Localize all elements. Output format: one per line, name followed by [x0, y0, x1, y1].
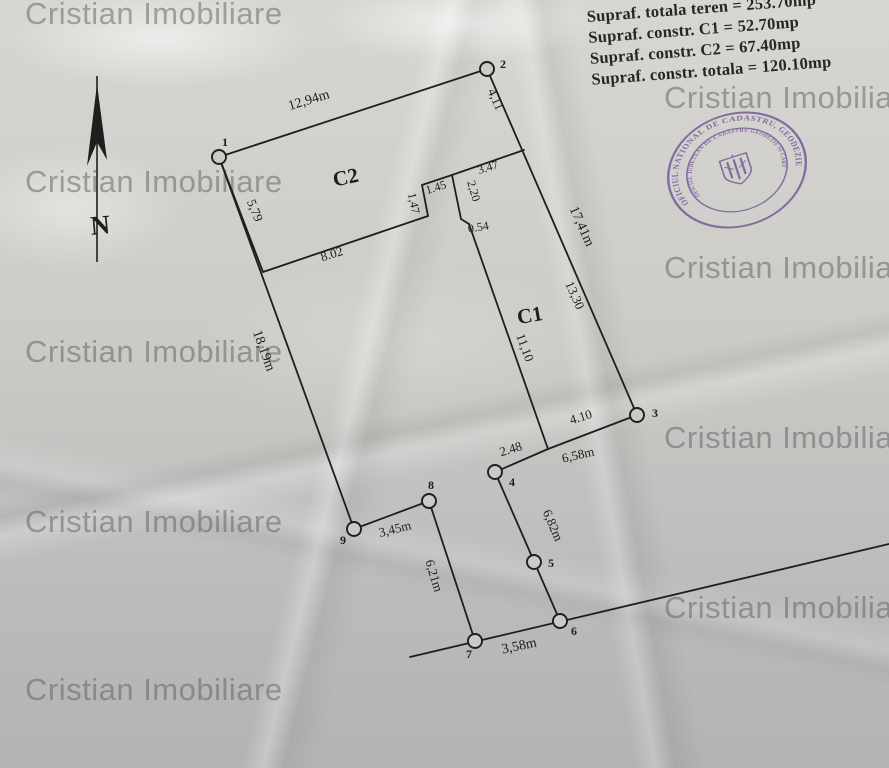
point-number-label: 7 — [466, 647, 472, 661]
dimension-label: 1,47 — [405, 191, 423, 214]
plan-line-c2-bottom — [263, 216, 428, 272]
dimension-label: 1.45 — [424, 177, 448, 197]
dimension-label: 13,30 — [562, 279, 588, 312]
building-label-C1: C1 — [515, 301, 544, 329]
dimension-label: 3,58m — [500, 636, 538, 658]
dimension-label: 5,79 — [244, 197, 266, 224]
point-number-label: 1 — [222, 135, 228, 149]
dimension-label: 17,41m — [566, 204, 597, 249]
north-arrow: N — [87, 76, 112, 262]
survey-point-4 — [488, 465, 502, 479]
dimension-label: 18,19m — [249, 328, 278, 373]
plan-line-boundary-9-1 — [219, 157, 354, 529]
survey-point-6 — [553, 614, 567, 628]
survey-point-1 — [212, 150, 226, 164]
point-number-label: 3 — [652, 406, 658, 420]
stamp-coat-of-arms-icon — [719, 150, 755, 188]
official-stamp: OFICIUL NATIONAL DE CADASTRU, GEODEZIE S… — [632, 80, 842, 260]
dimension-label: 6,21m — [422, 558, 446, 594]
dimension-label: 0.54 — [467, 218, 490, 235]
dimension-label: 6,82m — [540, 507, 567, 543]
dimension-label: 2,20 — [464, 179, 483, 203]
plan-line-boundary-2-3 — [487, 69, 637, 415]
survey-point-7 — [468, 634, 482, 648]
point-number-label: 5 — [548, 556, 554, 570]
survey-point-8 — [422, 494, 436, 508]
building-label-C2: C2 — [330, 163, 360, 192]
survey-point-3 — [630, 408, 644, 422]
dimension-label: 3.47 — [476, 157, 500, 177]
point-number-label: 8 — [428, 478, 434, 492]
plan-line-boundary-4-5-6 — [495, 472, 560, 621]
plan-line-boundary-1-2 — [219, 69, 487, 157]
point-number-label: 6 — [571, 624, 577, 638]
scanned-cadastral-plan: Cristian ImobiliareCristian ImobiliareCr… — [0, 0, 889, 768]
point-number-label: 9 — [340, 533, 346, 547]
plan-line-c1-left-1110 — [469, 224, 548, 449]
survey-point-2 — [480, 62, 494, 76]
survey-point-9 — [347, 522, 361, 536]
point-number-label: 2 — [500, 57, 506, 71]
north-label: N — [89, 209, 112, 241]
plan-line-c1-left-220 — [452, 175, 461, 219]
dimension-label: 6,58m — [560, 444, 595, 466]
dimension-label: 12,94m — [287, 87, 332, 114]
dimension-label: 4.10 — [568, 406, 594, 427]
survey-point-5 — [527, 555, 541, 569]
point-number-label: 4 — [509, 475, 515, 489]
dimension-label: 3,45m — [377, 517, 413, 540]
dimension-label: 8.02 — [319, 243, 345, 264]
dimension-label: 2.48 — [498, 438, 524, 459]
